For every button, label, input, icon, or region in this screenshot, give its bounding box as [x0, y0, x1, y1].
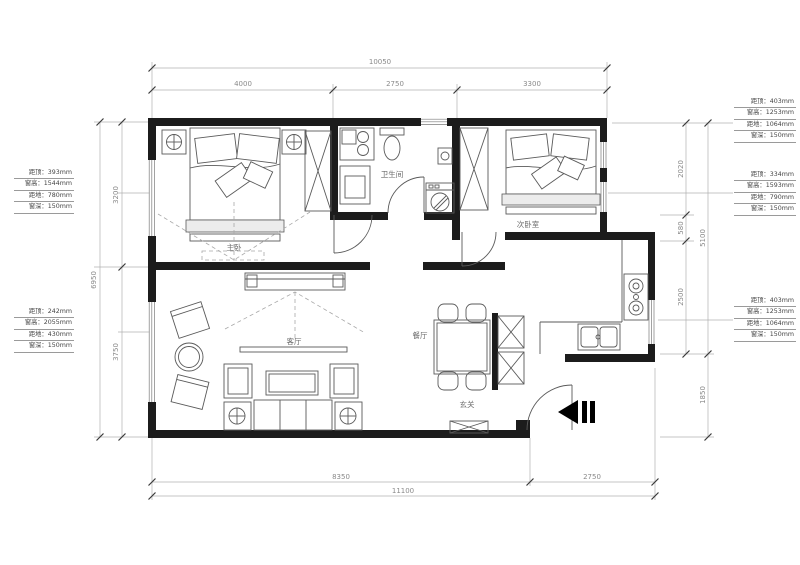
dim-bottom-seg1: 8350 [332, 473, 350, 481]
window-spec-row: 距顶：403mm [734, 296, 796, 307]
window-spec-row: 距地：1064mm [734, 120, 796, 131]
window-spec-row: 窗深：150mm [14, 341, 74, 352]
living-room-label: 客厅 [287, 336, 302, 346]
window-spec-row: 窗深：150mm [734, 131, 796, 142]
window-spec-row: 距顶：393mm [14, 168, 74, 179]
dim-right-seg1: 2020 [677, 160, 685, 178]
dim-top-overall: 10050 [369, 58, 391, 66]
window-spec-row: 距地：1064mm [734, 319, 796, 330]
dim-left-seg2: 3750 [112, 343, 120, 361]
dim-left-seg1: 3200 [112, 186, 120, 204]
second-bedroom-label: 次卧室 [517, 219, 540, 229]
dimension-left: 6950 3200 3750 [90, 119, 150, 441]
window-spec-row: 窗高：1593mm [734, 181, 796, 192]
window-spec-right-middle: 距顶：334mm 窗高：1593mm 距地：790mm 窗深：150mm [734, 170, 796, 216]
master-bedroom-label: 主卧 [227, 242, 242, 252]
dim-bottom-overall: 11100 [392, 487, 414, 495]
window-spec-row: 窗高：1253mm [734, 307, 796, 318]
dim-left-overall: 6950 [90, 271, 98, 289]
window-spec-left-bottom: 距顶：242mm 窗高：2055mm 距地：430mm 窗深：150mm [14, 307, 74, 353]
window-spec-right-top: 距顶：403mm 窗高：1253mm 距地：1064mm 窗深：150mm [734, 97, 796, 143]
dim-top-seg2: 2750 [386, 80, 404, 88]
dimension-right: 2020 580 2500 5100 1850 [608, 120, 733, 441]
window-spec-row: 窗深：150mm [734, 330, 796, 341]
window-spec-row: 窗深：150mm [14, 202, 74, 213]
dim-right-below: 1850 [699, 386, 707, 404]
dim-bottom-seg2: 2750 [583, 473, 601, 481]
entrance-arrow-icon [558, 400, 595, 424]
dim-right-overall: 5100 [699, 229, 707, 247]
floor-plan-drawing: 主卧 卫生间 次卧室 [0, 0, 800, 565]
window-spec-row: 窗高：1544mm [14, 179, 74, 190]
dimension-top: 10050 4000 2750 3300 [149, 58, 611, 118]
entry-label: 玄关 [460, 399, 475, 409]
window-spec-row: 距地：780mm [14, 191, 74, 202]
second-bedroom-furniture [460, 128, 600, 214]
dim-right-seg3: 2500 [677, 288, 685, 306]
window-spec-row: 距地：430mm [14, 330, 74, 341]
window-spec-row: 窗高：1253mm [734, 108, 796, 119]
dining-furniture [434, 304, 524, 390]
master-bedroom-furniture [158, 128, 331, 260]
floor-plan-canvas: 主卧 卫生间 次卧室 [0, 0, 800, 565]
living-room-furniture [170, 273, 365, 430]
dim-top-seg1: 4000 [234, 80, 252, 88]
window-spec-row: 距顶：334mm [734, 170, 796, 181]
dim-right-seg2: 580 [677, 221, 685, 234]
window-spec-row: 窗高：2055mm [14, 318, 74, 329]
kitchen-furniture [540, 240, 648, 354]
dining-room-label: 餐厅 [413, 331, 428, 340]
window-spec-row: 距地：790mm [734, 193, 796, 204]
window-spec-left-top: 距顶：393mm 窗高：1544mm 距地：780mm 窗深：150mm [14, 168, 74, 214]
window-spec-row: 窗深：150mm [734, 204, 796, 215]
window-spec-right-lower: 距顶：403mm 窗高：1253mm 距地：1064mm 窗深：150mm [734, 296, 796, 342]
bathroom-label: 卫生间 [381, 169, 404, 179]
window-spec-row: 距顶：403mm [734, 97, 796, 108]
window-spec-row: 距顶：242mm [14, 307, 74, 318]
dim-top-seg3: 3300 [523, 80, 541, 88]
